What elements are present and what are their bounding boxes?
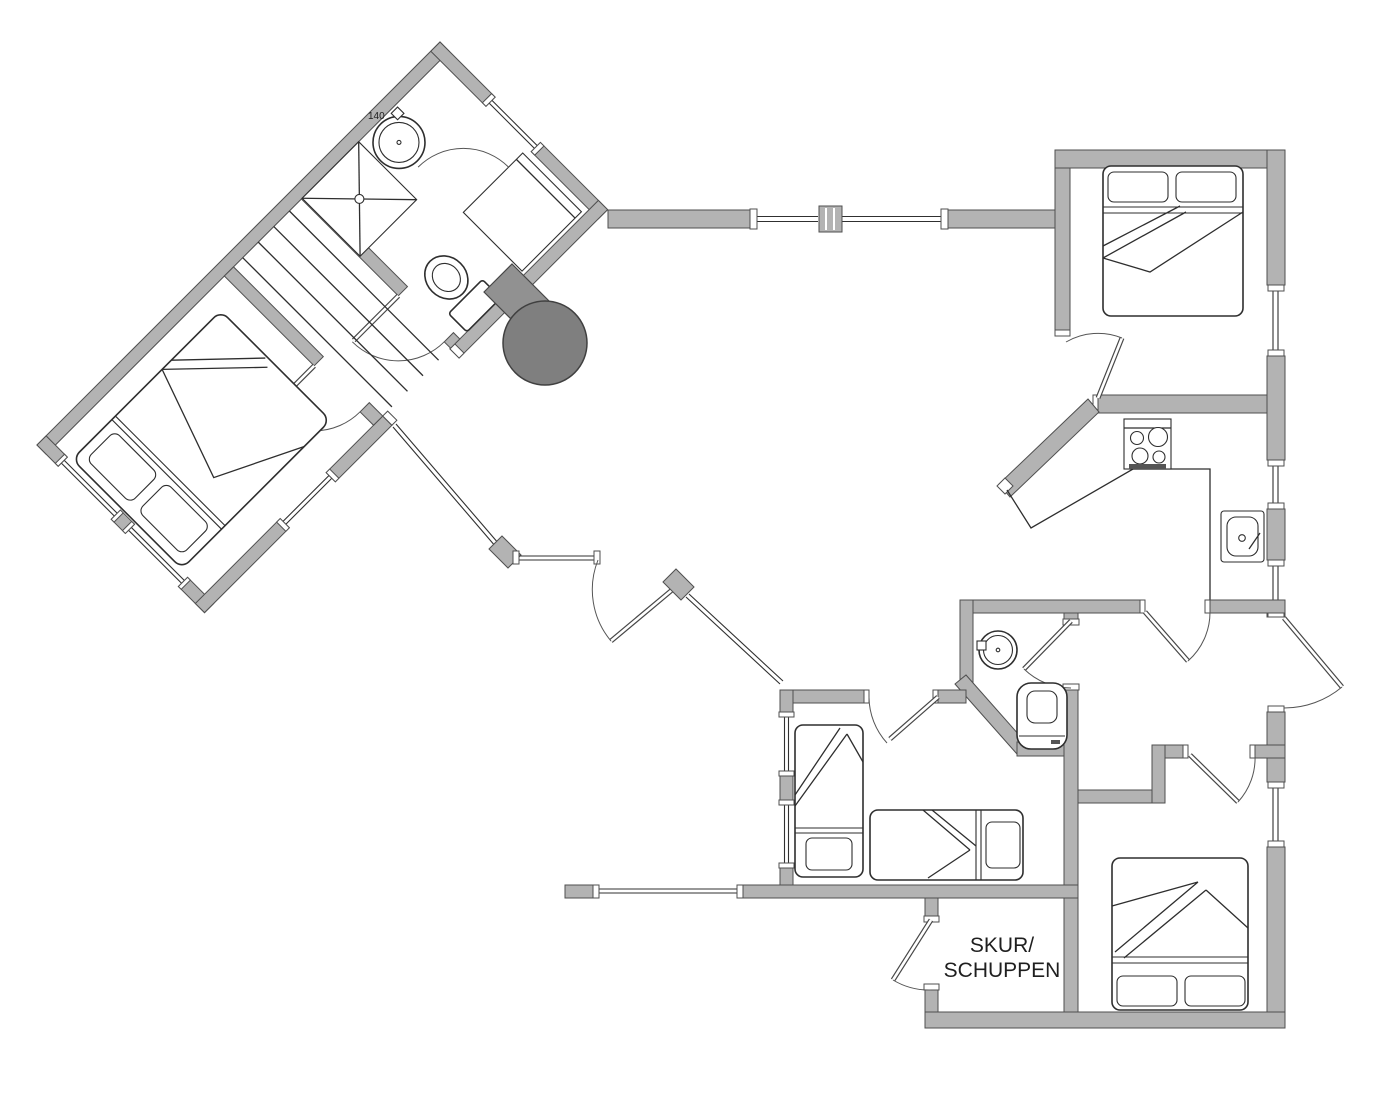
bunk-bedroom xyxy=(779,690,1023,898)
shed-label-line1: SKUR/ xyxy=(970,934,1034,957)
east-wall xyxy=(1267,150,1342,1028)
wing-bathroom-door xyxy=(352,296,444,388)
window-mullion xyxy=(819,206,842,232)
north-windows xyxy=(750,206,948,232)
east-window-2 xyxy=(1268,460,1284,509)
double-bed-northeast xyxy=(1103,166,1243,316)
glass-facade xyxy=(393,424,783,684)
washing-machine-icon xyxy=(977,631,1017,669)
kitchen-diagonal-wall xyxy=(999,399,1099,497)
bedroom-se-door xyxy=(1190,755,1255,802)
east-window-1 xyxy=(1268,285,1284,356)
single-bed-left xyxy=(795,725,863,877)
kitchen-counter xyxy=(1007,469,1210,600)
bedroom-ne-bottom-wall xyxy=(1098,395,1285,413)
terrace-door xyxy=(592,560,672,641)
floor-plan-page: 140 xyxy=(0,0,1390,1098)
stove-icon xyxy=(503,301,587,385)
pillow xyxy=(1108,172,1168,202)
pillow xyxy=(806,838,852,870)
kitchen xyxy=(997,399,1264,600)
bunkroom-west-wall xyxy=(780,690,793,714)
facade-window-upper xyxy=(393,424,499,547)
bathroom-s-left-wall xyxy=(960,600,973,688)
south-window xyxy=(593,885,743,898)
bunkroom-top-wall xyxy=(938,690,966,703)
facade-window-lower xyxy=(686,594,783,684)
washer-dimension-label: 140 xyxy=(368,111,385,122)
bedroom-ne-door xyxy=(1066,333,1122,398)
floor-plan-drawing: 140 xyxy=(0,0,1390,1098)
wing-bedroom-side-window xyxy=(277,469,339,531)
wing-northeast-wall xyxy=(431,42,495,106)
toilet-icon xyxy=(1017,683,1067,749)
hallway-door xyxy=(1145,612,1210,661)
double-bed-southeast xyxy=(1112,858,1248,1010)
wing-northeast-window xyxy=(482,94,544,156)
south-outer-wall xyxy=(925,1012,1285,1028)
double-bed-wing xyxy=(72,311,330,569)
pillow xyxy=(986,822,1020,868)
bedroom-northeast xyxy=(1055,150,1285,413)
bunkroom-door xyxy=(869,697,938,743)
facade-window-mid xyxy=(513,551,600,564)
single-bed-right xyxy=(870,810,1023,880)
east-window-4 xyxy=(1268,782,1284,847)
living-room-north-wall xyxy=(608,206,1058,232)
sink-icon xyxy=(1221,511,1264,562)
bunkroom-window-mullion xyxy=(780,776,793,800)
south-wall xyxy=(565,885,1078,898)
wing-southeast-wall xyxy=(326,416,392,482)
bunkroom-top-wall xyxy=(790,690,868,703)
bathroom-south-door xyxy=(1024,621,1071,688)
shed-label-line2: SCHUPPEN xyxy=(944,959,1061,982)
entrance-door xyxy=(1268,611,1342,712)
hall-bedroom-walls xyxy=(1078,745,1285,803)
pillow xyxy=(1117,976,1177,1006)
cooktop-icon xyxy=(1124,419,1171,469)
pillow xyxy=(1176,172,1236,202)
shed-door xyxy=(893,920,931,990)
bedroom-ne-left-wall xyxy=(1055,168,1070,335)
pillow xyxy=(1185,976,1245,1006)
